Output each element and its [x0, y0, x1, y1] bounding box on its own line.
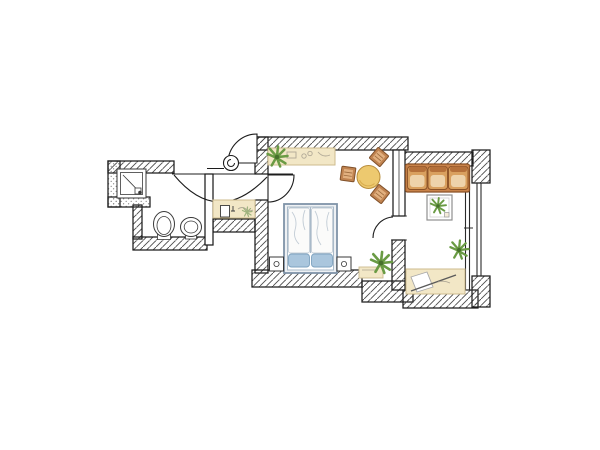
wall-bathroom-west-step: [133, 205, 142, 239]
sofa-seat-inner: [431, 175, 446, 187]
floor-plan-page: [0, 0, 600, 450]
bidet-bowl-inner: [184, 221, 198, 233]
nightstand-left: [270, 257, 284, 271]
pillow-left: [289, 254, 310, 267]
sofa-seat-inner: [410, 175, 425, 187]
three-seat-sofa: [406, 164, 470, 192]
wicker-stool: [340, 166, 356, 182]
sofa-seat-inner: [451, 175, 466, 187]
vanity-counter: [213, 200, 255, 218]
side-table-small-object: [445, 213, 450, 218]
shower-tray: [117, 169, 146, 198]
sofa-back-strip: [430, 167, 447, 173]
writing-desk: [406, 269, 465, 294]
round-dining-table: [357, 166, 380, 189]
shelf-top: [359, 267, 383, 278]
side-table-with-plant: [427, 195, 452, 220]
shower-drain-dot: [139, 191, 142, 194]
duvet-right: [312, 208, 333, 253]
pillow-right: [312, 254, 333, 267]
door-knob-symbol: [224, 156, 239, 171]
duvet-left: [289, 208, 310, 253]
vanity-top: [213, 200, 255, 218]
stool-seat-inner: [343, 169, 353, 179]
wall-east-corner-top: [472, 150, 490, 183]
low-shelf: [359, 267, 383, 278]
nightstand-right: [337, 257, 351, 271]
wall-hall-south: [213, 219, 255, 232]
vanity-sink: [221, 206, 230, 218]
toilet-bowl-inner: [157, 217, 171, 235]
wall-secondroom-west-lower: [392, 240, 405, 290]
sofa-back-strip: [409, 167, 426, 173]
floor-plan-drawing: [0, 0, 600, 450]
sofa-back-strip: [450, 167, 467, 173]
wall-mainroom-west-lower: [255, 200, 268, 273]
wall-east-corner-bottom: [472, 276, 490, 307]
wall-bathroom-east: [205, 174, 213, 245]
